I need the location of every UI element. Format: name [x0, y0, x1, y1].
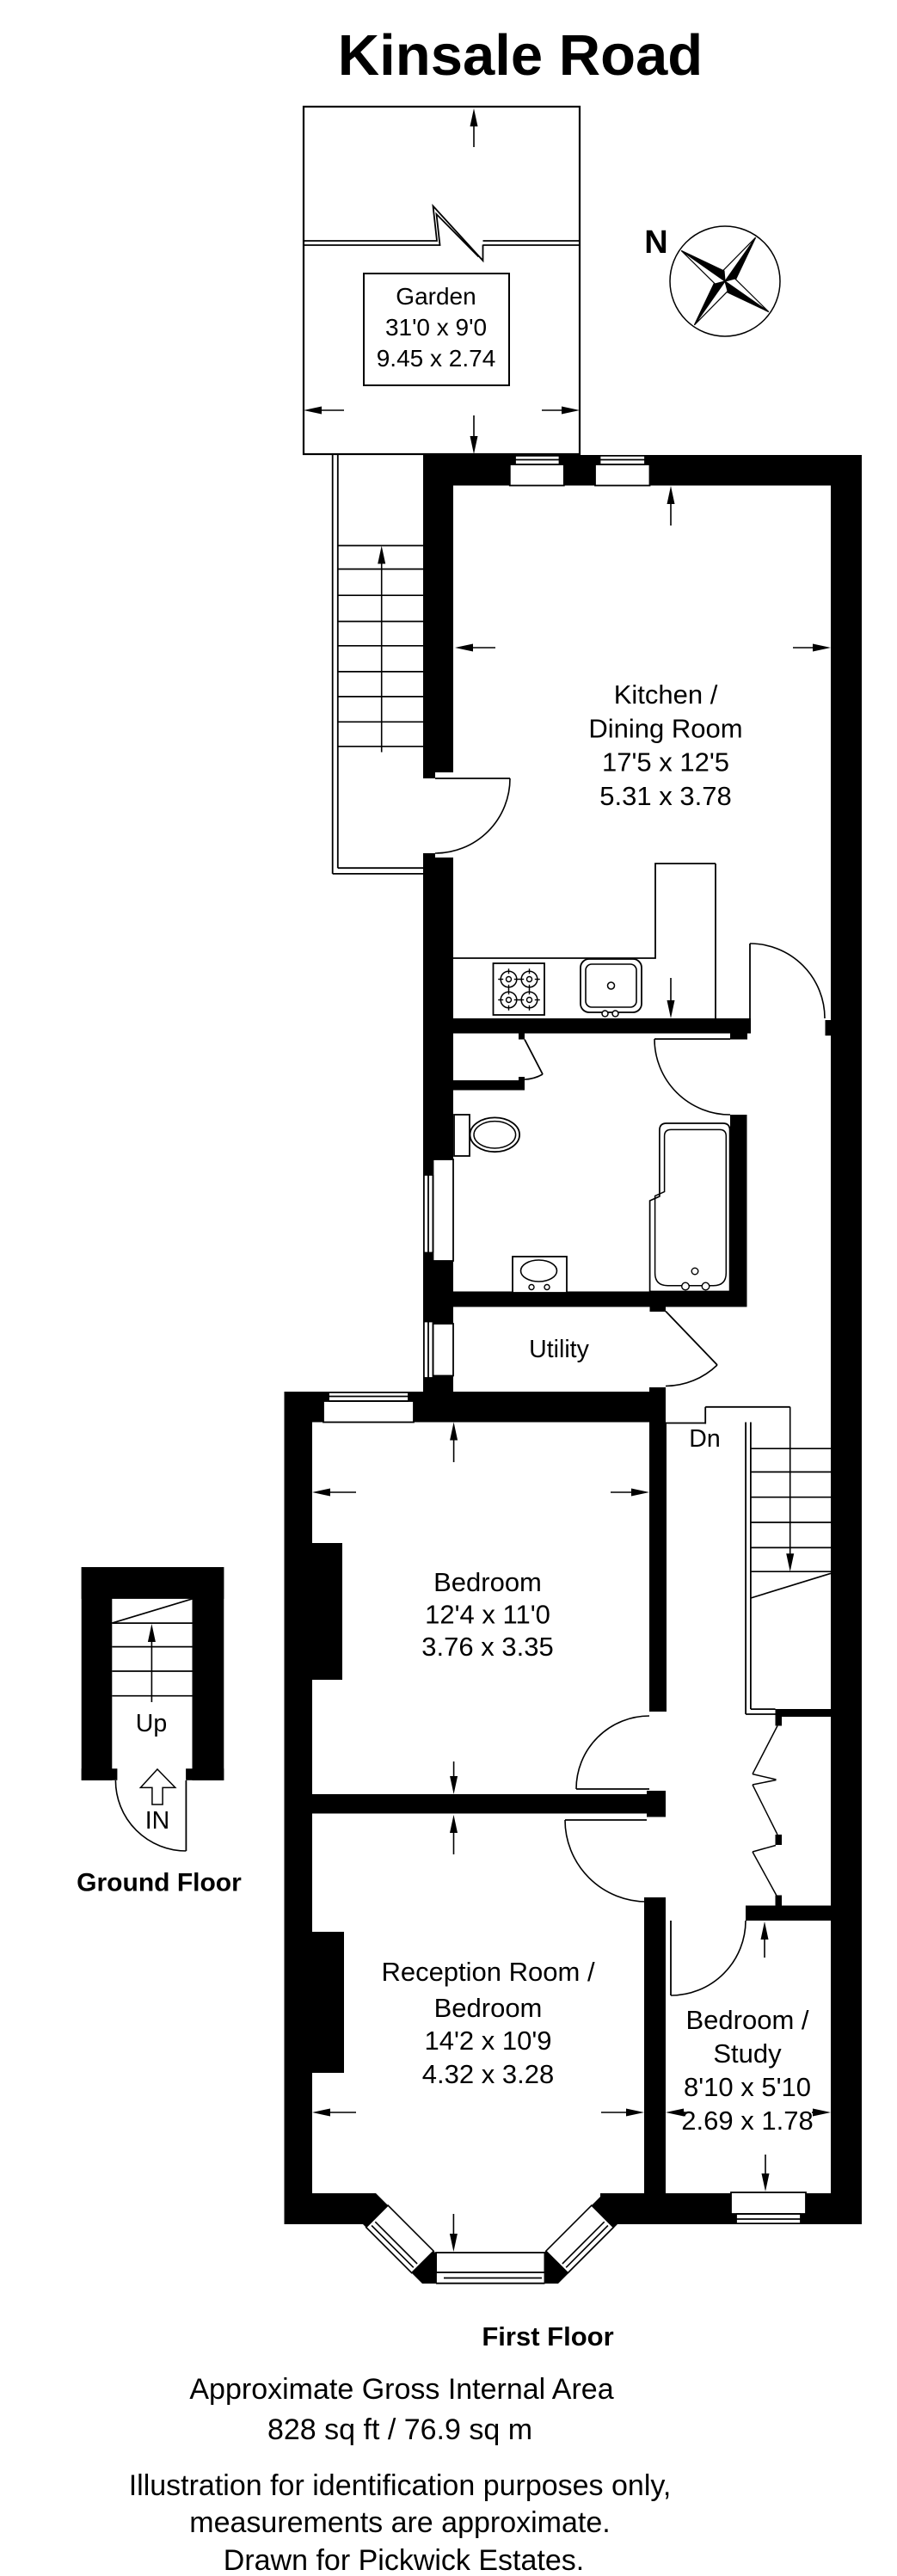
svg-text:Kinsale Road: Kinsale Road	[338, 23, 703, 88]
svg-text:828 sq ft / 76.9 sq m: 828 sq ft / 76.9 sq m	[267, 2413, 532, 2446]
svg-text:17'5 x 12'5: 17'5 x 12'5	[602, 747, 729, 778]
svg-text:Bedroom: Bedroom	[434, 1993, 543, 2023]
svg-text:2.69 x 1.78: 2.69 x 1.78	[681, 2106, 813, 2136]
svg-text:9.45 x 2.74: 9.45 x 2.74	[377, 345, 496, 372]
svg-text:Reception Room /: Reception Room /	[381, 1957, 595, 1987]
svg-text:12'4 x 11'0: 12'4 x 11'0	[425, 1600, 550, 1630]
svg-text:Bedroom: Bedroom	[433, 1567, 542, 1597]
svg-text:8'10 x 5'10: 8'10 x 5'10	[684, 2072, 811, 2102]
svg-text:Kitchen /: Kitchen /	[614, 679, 718, 710]
svg-text:5.31 x 3.78: 5.31 x 3.78	[599, 781, 731, 811]
svg-text:measurements are approximate.: measurements are approximate.	[189, 2506, 610, 2539]
svg-text:Dn: Dn	[689, 1425, 720, 1453]
svg-text:Ground Floor: Ground Floor	[77, 1869, 242, 1897]
svg-text:Approximate Gross Internal Are: Approximate Gross Internal Area	[189, 2373, 613, 2406]
svg-text:First Floor: First Floor	[482, 2321, 613, 2352]
svg-text:IN: IN	[145, 1807, 170, 1835]
svg-text:31'0 x 9'0: 31'0 x 9'0	[385, 314, 487, 341]
svg-text:14'2 x 10'9: 14'2 x 10'9	[424, 2026, 551, 2056]
svg-text:Dining Room: Dining Room	[588, 714, 742, 744]
svg-text:4.32 x 3.28: 4.32 x 3.28	[422, 2059, 554, 2089]
svg-text:Drawn for Pickwick Estates.: Drawn for Pickwick Estates.	[224, 2544, 584, 2576]
svg-text:N: N	[644, 224, 667, 261]
svg-text:Bedroom /: Bedroom /	[685, 2005, 808, 2035]
svg-text:Up: Up	[136, 1710, 167, 1737]
svg-text:Garden: Garden	[396, 283, 476, 310]
svg-text:Utility: Utility	[529, 1336, 589, 1363]
svg-text:Illustration for identificatio: Illustration for identification purposes…	[129, 2469, 672, 2502]
svg-text:3.76 x 3.35: 3.76 x 3.35	[421, 1632, 553, 1662]
svg-text:Study: Study	[713, 2038, 782, 2069]
